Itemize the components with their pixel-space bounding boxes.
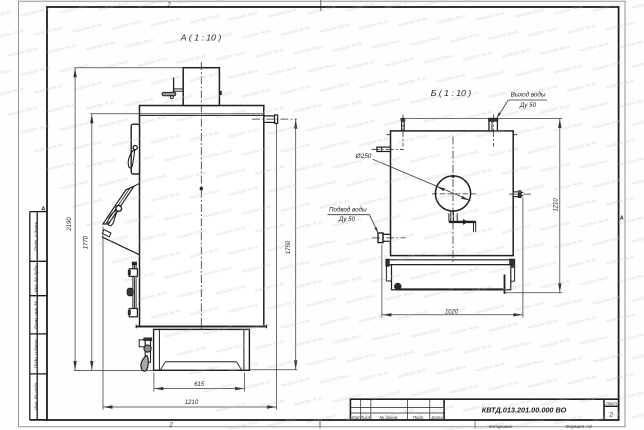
svg-text:1210: 1210 [185,400,199,406]
svg-text:2: 2 [168,422,173,428]
svg-text:Подвод воды: Подвод воды [329,206,367,213]
svg-text:Формат А3: Формат А3 [565,424,592,430]
svg-text:Подп. и дата: Подп. и дата [33,222,38,251]
svg-text:1770: 1770 [84,235,90,249]
svg-text:615: 615 [194,382,205,388]
svg-text:Подп.: Подп. [413,415,424,420]
svg-text:Инв. № дубл.: Инв. № дубл. [33,264,38,292]
svg-text:Взам. инв. №: Взам. инв. № [33,301,38,329]
svg-text:Дата: Дата [430,415,443,420]
svg-text:КВТД.013.201.00.000 ВО: КВТД.013.201.00.000 ВО [482,406,567,415]
svg-text:Лист: Лист [605,401,617,406]
svg-text:Инв. № подл.: Инв. № подл. [33,381,38,410]
svg-text:Подп. и дата: Подп. и дата [33,339,38,368]
svg-text:2190: 2190 [67,217,73,232]
